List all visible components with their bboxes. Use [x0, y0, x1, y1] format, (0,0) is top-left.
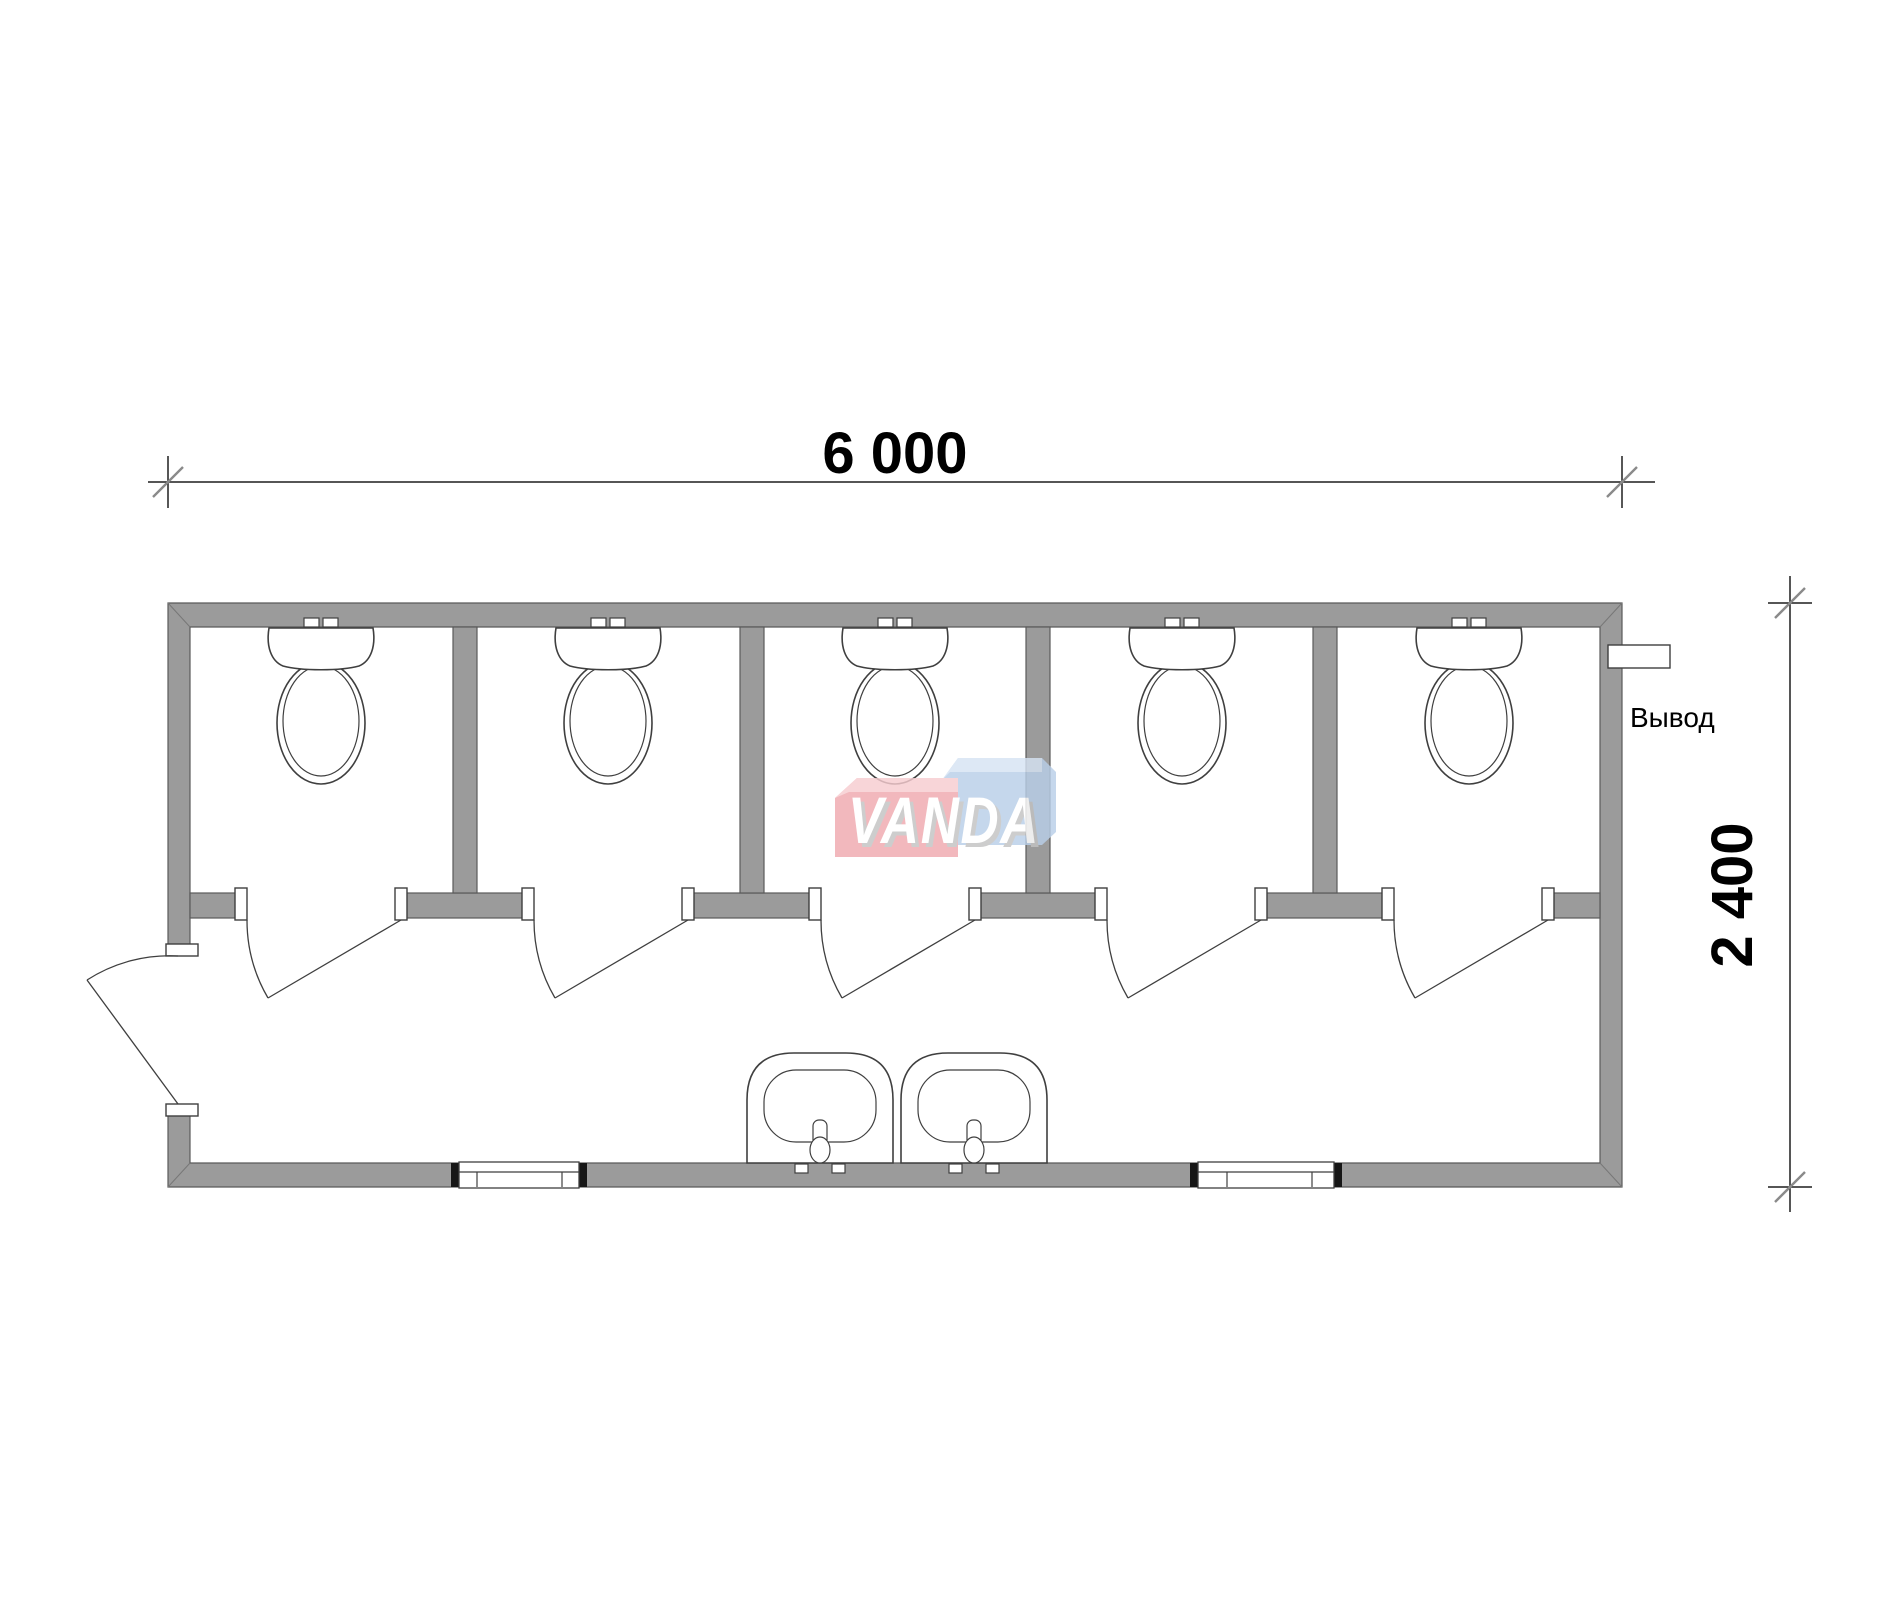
watermark-text: VANDA [848, 783, 1040, 857]
sink-2 [901, 1053, 1047, 1173]
height-dimension-text: 2 400 [1700, 822, 1765, 967]
sink-1 [747, 1053, 893, 1173]
stall-partition-1 [453, 627, 477, 893]
floor-plan-page: Вывод 6 000 2 400 VANDA VANDA [0, 0, 1899, 1617]
height-dimension: 2 400 [1700, 576, 1812, 1212]
toilet-4 [1129, 618, 1235, 784]
window-right [1190, 1162, 1342, 1188]
vanda-watermark: VANDA VANDA [835, 758, 1056, 861]
stall-door-1 [235, 888, 407, 998]
toilet-2 [555, 618, 661, 784]
stall-door-4 [1095, 888, 1267, 998]
outlet-label: Вывод [1630, 702, 1715, 733]
entrance-door [87, 944, 198, 1116]
floor-plan-drawing: Вывод 6 000 2 400 VANDA VANDA [0, 0, 1899, 1617]
stall-partition-4 [1313, 627, 1337, 893]
toilet-1 [268, 618, 374, 784]
toilet-5 [1416, 618, 1522, 784]
stall-door-3 [809, 888, 981, 998]
width-dimension: 6 000 [148, 421, 1655, 508]
width-dimension-text: 6 000 [822, 421, 967, 486]
window-left [451, 1162, 587, 1188]
outlet-connector [1608, 645, 1670, 668]
stall-door-5 [1382, 888, 1554, 998]
toilet-3 [842, 618, 948, 784]
stall-door-2 [522, 888, 694, 998]
stall-partition-2 [740, 627, 764, 893]
